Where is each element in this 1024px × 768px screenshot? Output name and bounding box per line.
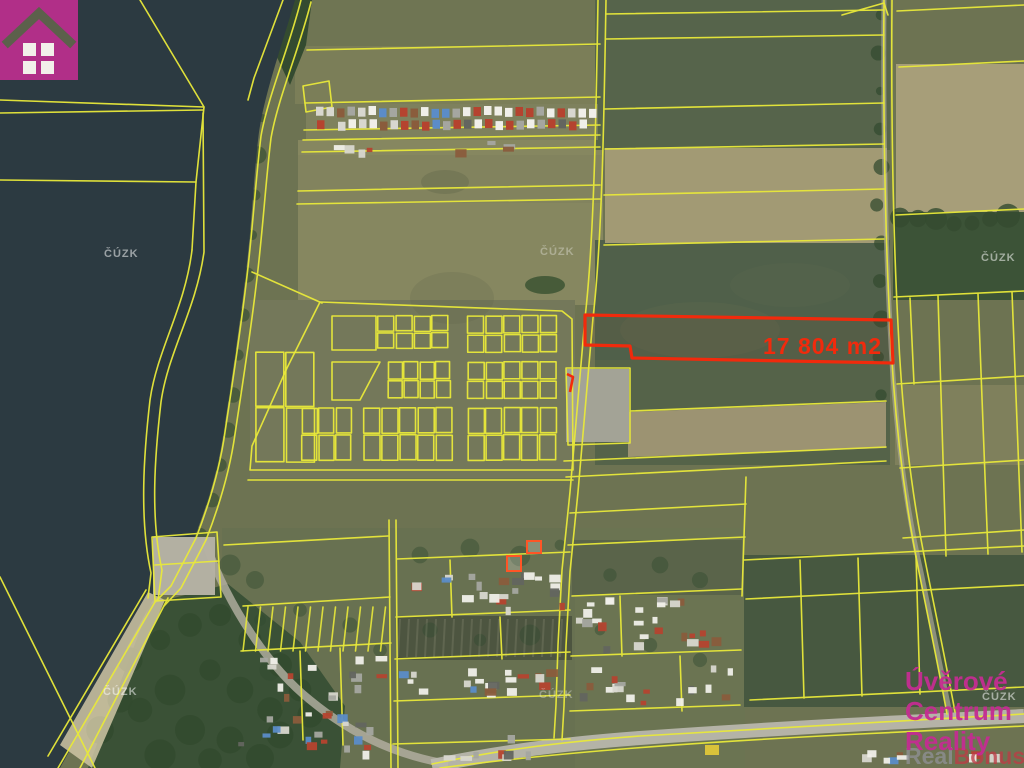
agency-logo: Úvěrové Centrum Reality [905,666,1024,756]
logo-line-2: Centrum [905,696,1024,726]
cadastral-map [0,0,1024,768]
logo-line-1: Úvěrové [905,666,1024,696]
cuzk-watermark: ČÚZK [539,689,574,701]
house-icon [0,0,78,80]
cuzk-watermark: ČÚZK [540,246,575,258]
parcel-area-label: 17 804 m2 [763,333,882,360]
map-image[interactable]: ČÚZK ČÚZK ČÚZK ČÚZK ČÚZK ČÚZK 17 804 m2 … [0,0,1024,768]
cuzk-watermark: ČÚZK [103,686,138,698]
cuzk-watermark: ČÚZK [981,252,1016,264]
logo-line-3: Reality [905,726,1024,756]
cuzk-watermark: ČÚZK [104,248,139,260]
